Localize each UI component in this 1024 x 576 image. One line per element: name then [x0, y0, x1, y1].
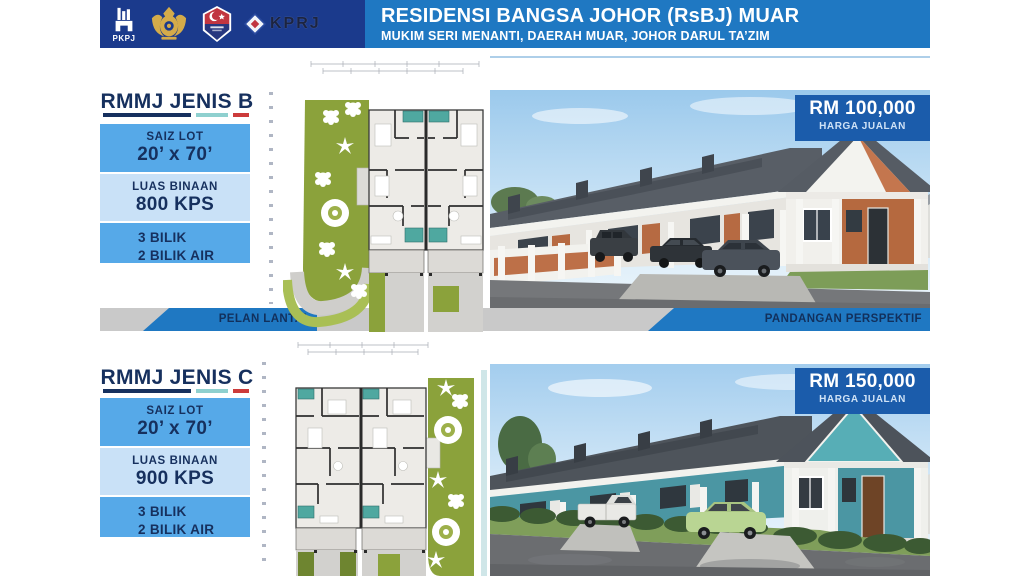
page-title: RESIDENSI BANGSA JOHOR (RsBJ) MUAR — [381, 5, 930, 27]
price-badge-jenis-b: RM 100,000 HARGA JUALAN — [795, 95, 930, 141]
flyer-canvas: PKPJ — [0, 0, 1024, 576]
spec-box-bilik-c: 3 BILIK 2 BILIK AIR — [100, 497, 250, 537]
kprj-diamond-icon — [243, 12, 267, 36]
divider-line-b — [490, 56, 930, 58]
johor-royal-crest-icon — [147, 5, 191, 43]
section-title-jenis-b: RMMJ JENIS B — [98, 90, 256, 114]
spec-value: 2 BILIK AIR — [138, 247, 250, 265]
caption-band-b: PELAN LANTAI PANDANGAN PERSPEKTIF — [100, 308, 930, 331]
dimension-ticks-c — [262, 362, 266, 562]
spec-value: 800 KPS — [100, 194, 250, 216]
plan-c-garden — [428, 378, 474, 576]
pkpj-building-icon — [110, 6, 138, 34]
dimension-ticks-b — [269, 92, 273, 304]
spec-label: LUAS BINAAN — [100, 174, 250, 193]
spec-value: 20’ x 70’ — [100, 418, 250, 440]
kprj-logo-label: KPRJ — [270, 15, 321, 33]
caption-pandangan-perspektif: PANDANGAN PERSPEKTIF — [648, 308, 930, 331]
price-label: HARGA JUALAN — [795, 121, 930, 132]
section-underline-jenis-c — [103, 389, 249, 393]
spec-box-luas-binaan-c: LUAS BINAAN 900 KPS — [100, 448, 250, 495]
spec-value: 2 BILIK AIR — [138, 521, 250, 539]
spec-value: 900 KPS — [100, 468, 250, 490]
spec-label: SAIZ LOT — [100, 398, 250, 417]
section-underline-jenis-b — [103, 113, 249, 117]
floor-plan-jenis-b — [283, 58, 487, 332]
spec-label: 3 BILIK — [138, 229, 250, 247]
spec-label: 3 BILIK — [138, 503, 250, 521]
price-badge-jenis-c: RM 150,000 HARGA JUALAN — [795, 368, 930, 414]
spec-box-bilik-b: 3 BILIK 2 BILIK AIR — [100, 223, 250, 263]
floor-plan-jenis-c — [278, 340, 490, 576]
pkpj-logo-icon: PKPJ — [110, 6, 138, 43]
spec-box-luas-binaan-b: LUAS BINAAN 800 KPS — [100, 174, 250, 221]
page-subtitle: MUKIM SERI MENANTI, DAERAH MUAR, JOHOR D… — [381, 29, 930, 43]
spec-value: 20’ x 70’ — [100, 144, 250, 166]
pkpj-logo-label: PKPJ — [113, 35, 136, 43]
price-value: RM 150,000 — [795, 372, 930, 393]
spec-box-saiz-lot-c: SAIZ LOT 20’ x 70’ — [100, 398, 250, 446]
section-title-jenis-c: RMMJ JENIS C — [98, 366, 256, 390]
kprj-logo-icon: KPRJ — [243, 12, 321, 36]
price-label: HARGA JUALAN — [795, 394, 930, 405]
header-logo-band: PKPJ — [100, 0, 365, 48]
spec-box-saiz-lot-b: SAIZ LOT 20’ x 70’ — [100, 124, 250, 172]
header-title-band: RESIDENSI BANGSA JOHOR (RsBJ) MUAR MUKIM… — [365, 0, 930, 48]
spec-label: SAIZ LOT — [100, 124, 250, 143]
spec-label: LUAS BINAAN — [100, 448, 250, 467]
price-value: RM 100,000 — [795, 99, 930, 120]
johor-crescent-shield-icon — [200, 5, 234, 43]
